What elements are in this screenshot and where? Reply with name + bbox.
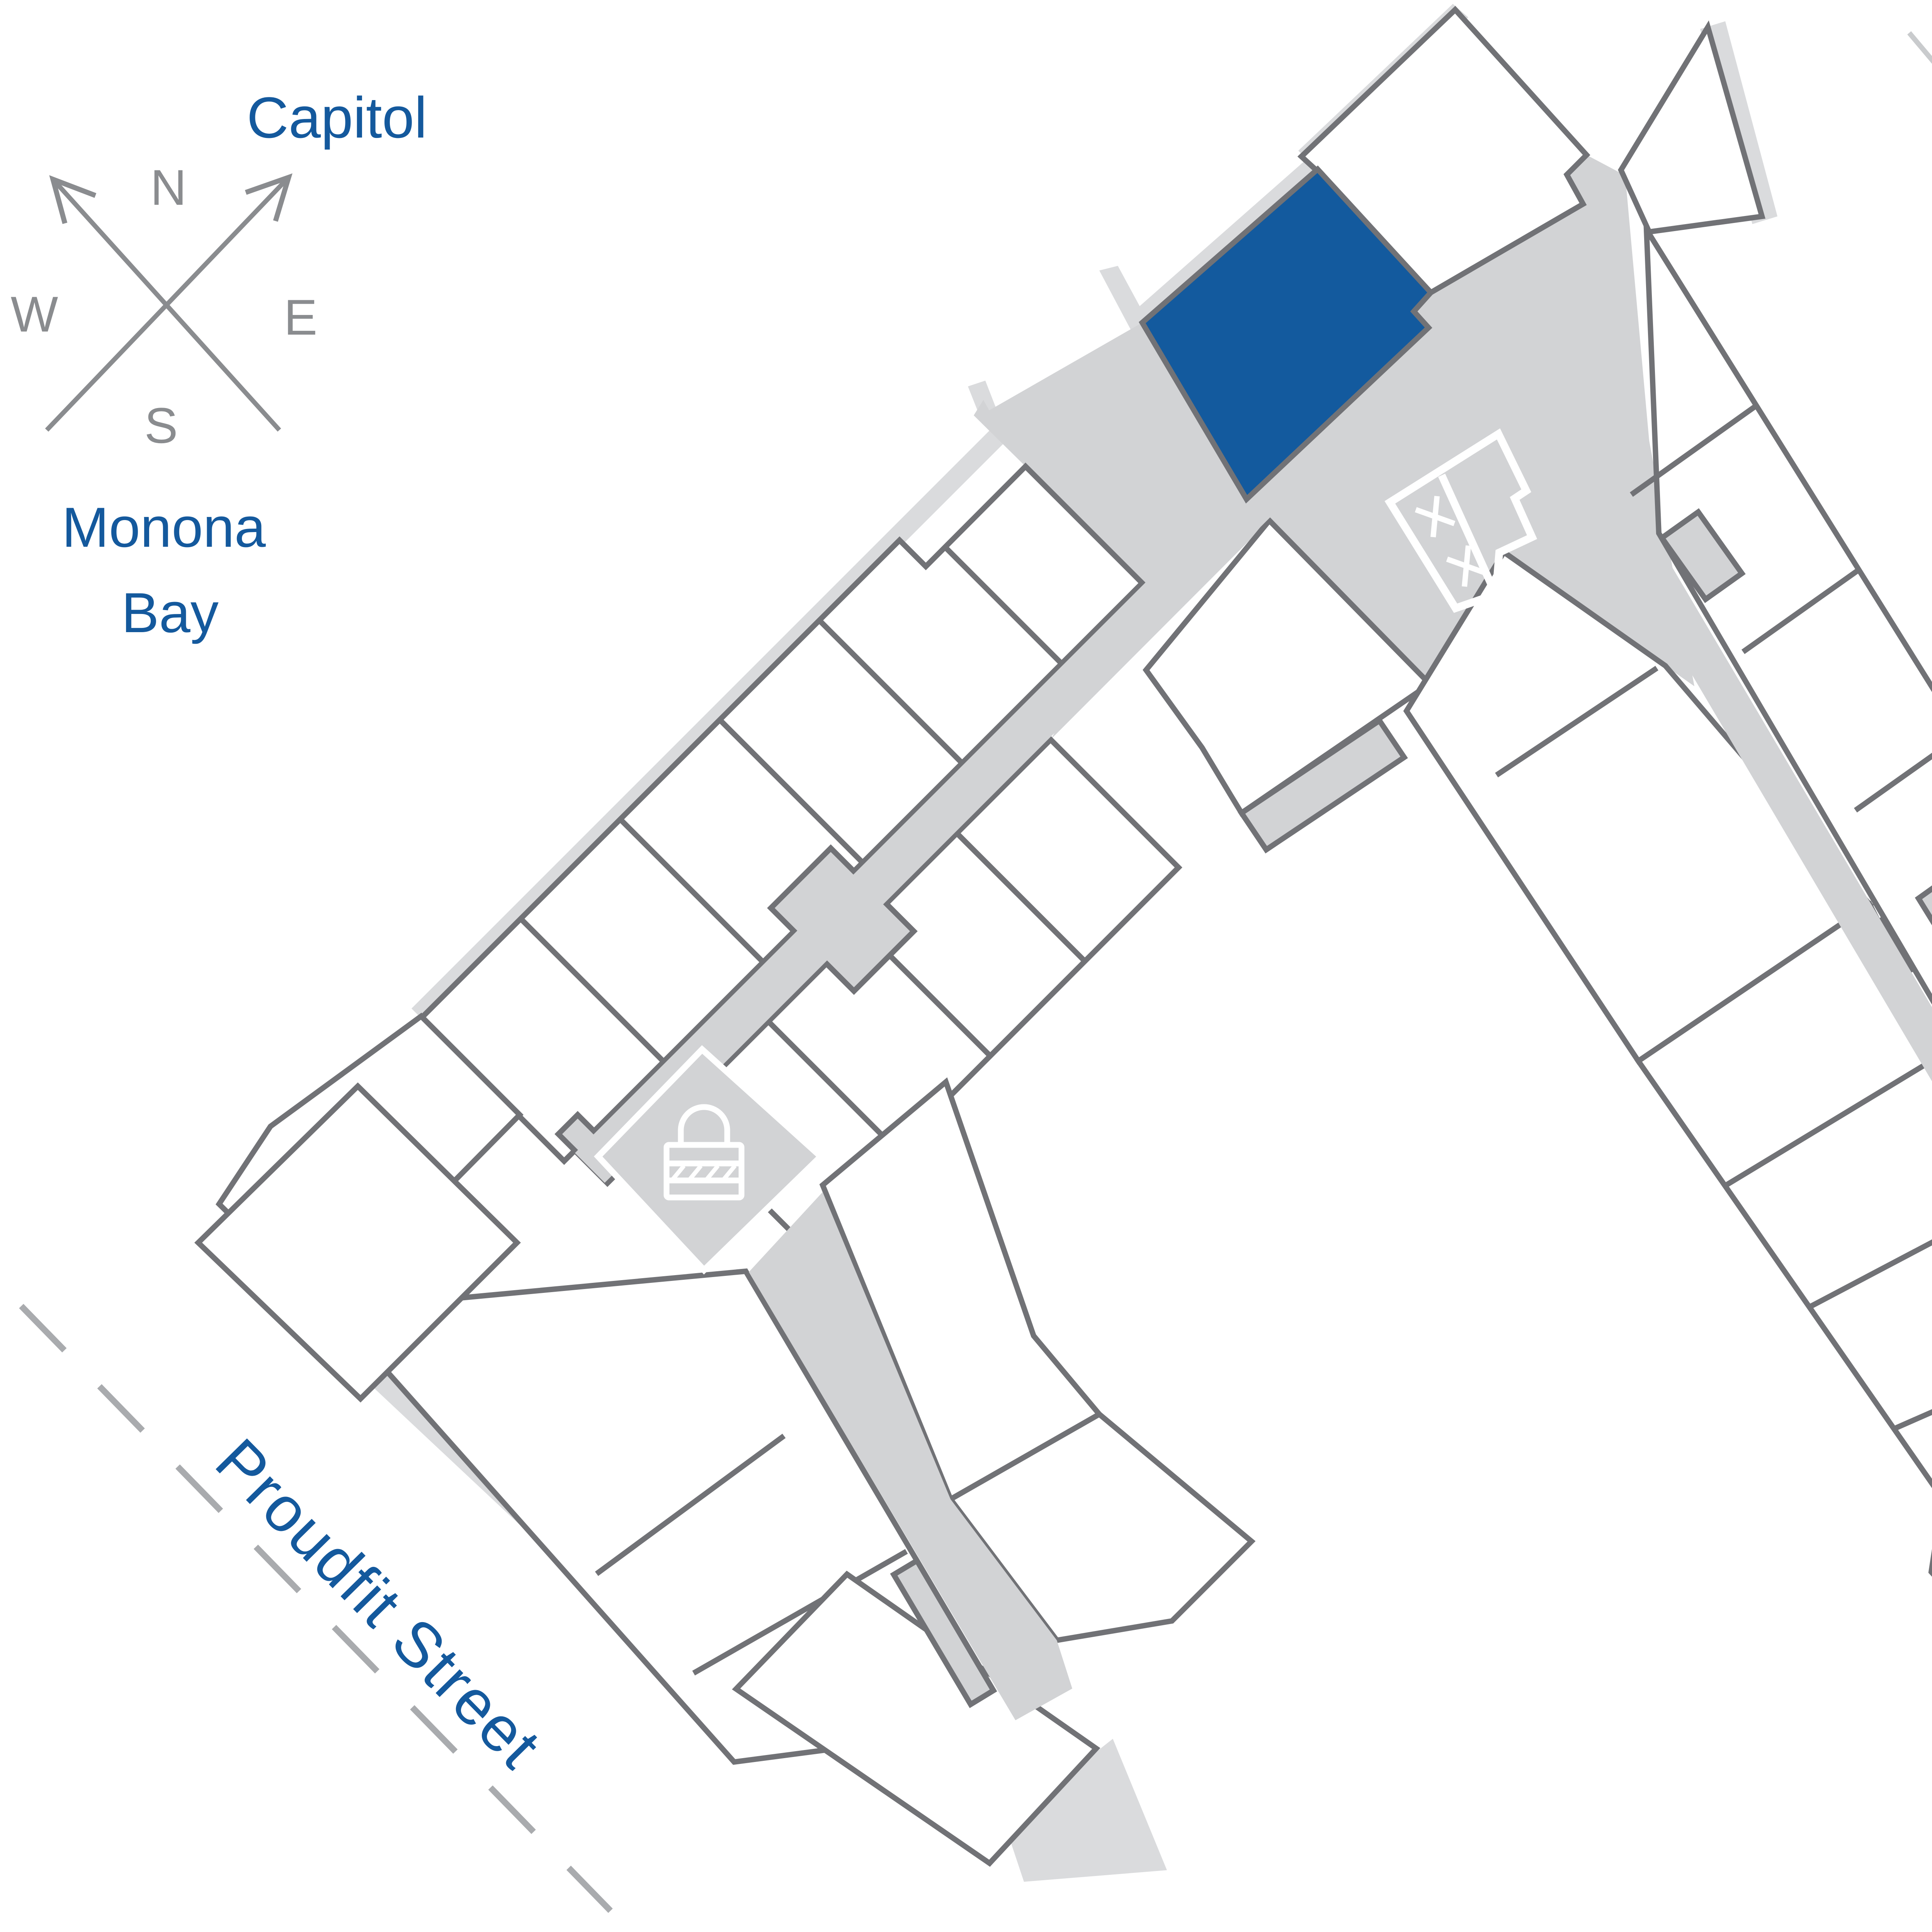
svg-text:North Shore Drive: North Shore Drive [1927,1913,1932,1932]
svg-text:W: W [11,286,58,342]
svg-text:N: N [150,159,187,216]
svg-text:Monona: Monona [62,496,266,559]
svg-text:S: S [145,397,178,454]
svg-text:Bay: Bay [121,581,219,644]
svg-text:E: E [284,289,318,345]
svg-text:Capitol: Capitol [247,85,427,150]
